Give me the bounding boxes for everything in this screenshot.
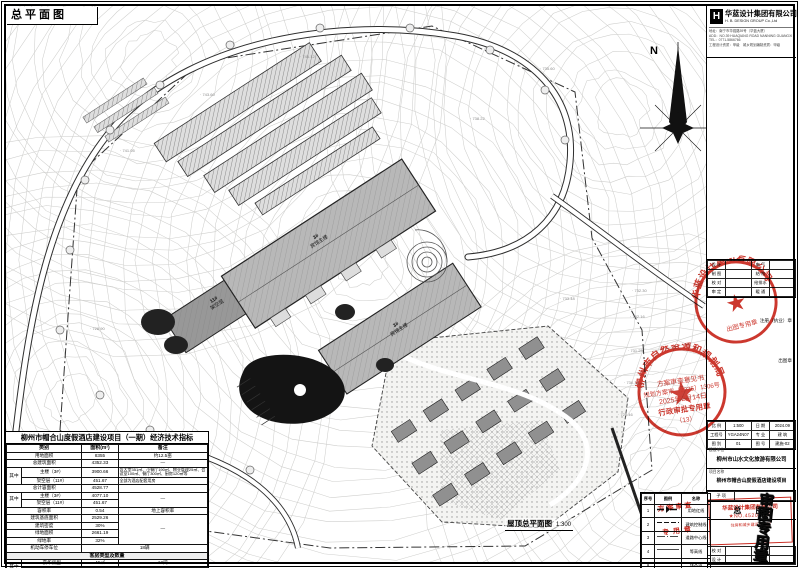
legend-name: 排水沟	[682, 558, 711, 568]
company-logo: H	[710, 9, 723, 24]
economic-indicator-table: 柳州市帽合山度假酒店建设项目（一期）经济技术指标 类别面积(m²)备注用地面积8…	[5, 431, 209, 568]
econ-cell: 全部为酒店配套用房	[118, 477, 207, 485]
econ-cell: 4077.10	[82, 492, 118, 500]
econ-cell: 32%	[82, 537, 118, 545]
econ-cell: 451.67	[82, 500, 118, 508]
bureau-stamp-line5: （13）	[675, 414, 696, 425]
caption-text: 屋顶总平面图	[507, 519, 552, 528]
legend-no: 5	[642, 558, 655, 568]
company-name-en: H. B. DESIGN GROUP Co.,Ltd	[725, 19, 777, 23]
econ-cell: 架空层（11#）	[22, 500, 82, 508]
legend-symbol	[655, 558, 682, 568]
econ-cell: 建筑密度	[7, 522, 82, 530]
release-seal-line1: 华蓝设计集团有限公司	[709, 502, 790, 513]
tb-grid-cell: 2024.09	[769, 422, 795, 431]
econ-cell: 2529.26	[82, 515, 118, 523]
econ-cell: 8355	[82, 452, 118, 460]
spot-elevation: · 738.22	[470, 116, 485, 121]
econ-cell: 2661.19	[82, 530, 118, 538]
econ-row: 容积率0.54地上容积率	[7, 507, 208, 515]
econ-cell: 客房类型及数量	[7, 552, 208, 560]
north-label: N	[650, 45, 658, 57]
project-value: 柳州市帽合山度假酒店建设项目	[707, 477, 796, 484]
tb-grid-cell	[769, 556, 795, 565]
tb-grid-cell	[769, 547, 795, 556]
econ-row: 其中主楼（3#）3900.66含大堂351㎡、小餐厅190㎡、物业管理25㎡、会…	[7, 467, 208, 477]
spot-elevation: · 729.46	[618, 412, 633, 417]
company-header: H 华蓝设计集团有限公司 H. B. DESIGN GROUP Co.,Ltd …	[707, 6, 796, 58]
econ-row: 总计容面积4528.77	[7, 485, 208, 493]
client-value: 柳州市山水文化旅游有限公司	[707, 455, 796, 463]
legend-row: 4等高线	[642, 545, 711, 559]
company-info-line: 工程设计资质：甲级 城乡规划编制资质：甲级	[709, 43, 794, 48]
spot-elevation: · 735.60	[540, 66, 555, 71]
econ-cell: 容积率	[7, 507, 82, 515]
spot-elevation: · 732.16	[630, 314, 645, 319]
north-arrow: N	[640, 42, 706, 151]
econ-cell	[118, 485, 207, 493]
econ-cell: 主楼（3#）	[22, 467, 82, 477]
company-stamp-star: ★	[723, 288, 750, 318]
legend-symbol	[655, 545, 682, 559]
econ-cell: 备注	[118, 445, 207, 453]
econ-cell: 用地面积	[7, 452, 82, 460]
econ-cell: 其中	[7, 467, 22, 485]
econ-cell: 豪华房型	[22, 560, 82, 568]
econ-cell: —	[118, 515, 207, 545]
econ-row: 建筑基底面积2529.26—	[7, 515, 208, 523]
econ-cell: 主楼（3#）	[22, 492, 82, 500]
econ-cell: 其中	[7, 492, 22, 507]
econ-cell: 46㎡	[82, 560, 118, 568]
company-info-lines: 地址：南宁市华强路39号（华蓝大厦）ADD：NO.39 HUAQIANG ROA…	[709, 27, 794, 47]
client-field: 建设单位 柳州市山水文化旅游有限公司	[707, 447, 796, 469]
econ-row: 架空层（11#）451.67全部为酒店配套用房	[7, 477, 208, 485]
spot-elevation: · 733.48	[560, 296, 575, 301]
econ-table-title: 柳州市帽合山度假酒店建设项目（一期）经济技术指标	[6, 432, 208, 444]
econ-cell: 架空层（11#）	[22, 477, 82, 485]
title-block-blank-area	[707, 58, 796, 260]
tb-grid-cell	[725, 547, 751, 556]
econ-cell: 0.54	[82, 507, 118, 515]
econ-cell: 18辆	[82, 545, 208, 553]
spot-elevation: · 732.30	[632, 288, 647, 293]
planning-bureau-stamp: 柳州市自然资源和规划局 ★ 方案审查意见书 规划方案审〔2025〕1306号 2…	[628, 338, 736, 446]
spot-elevation: · 745.12	[300, 54, 315, 59]
spot-elevation: · 728.90	[90, 326, 105, 331]
econ-cell: 30%	[82, 522, 118, 530]
spot-elevation: · 743.60	[200, 92, 215, 97]
tb-grid-cell: 建 筑	[769, 431, 795, 440]
econ-row: 其中豪华房型46㎡12间	[7, 560, 208, 568]
sheet-title-text: 总平面图	[11, 9, 67, 21]
econ-row: 机动车停车位18辆	[7, 545, 208, 553]
econ-cell: 12间	[118, 560, 207, 568]
sheet-title: 总平面图	[7, 7, 98, 25]
econ-cell: 4528.77	[82, 485, 118, 493]
econ-cell: 建筑基底面积	[7, 515, 82, 523]
econ-cell: 绿地率	[7, 537, 82, 545]
econ-row: 类别面积(m²)备注	[7, 445, 208, 453]
tb-grid-cell	[769, 261, 795, 270]
econ-row: 总建筑面积4352.33—	[7, 460, 208, 468]
villa-zone	[372, 326, 628, 528]
econ-cell: 451.67	[82, 477, 118, 485]
econ-row: 其中主楼（3#）4077.10—	[7, 492, 208, 500]
econ-cell: 其中	[7, 560, 22, 568]
econ-cell: 含大堂351㎡、小餐厅190㎡、物业管理25㎡、会议室100㎡、餐厅300㎡、厨…	[118, 467, 207, 477]
econ-cell: 面积(m²)	[82, 445, 118, 453]
econ-cell: —	[118, 460, 207, 468]
econ-cell: 3900.66	[82, 467, 118, 477]
drawing-sheet: · 732.30· 732.16· 731.25· 730.18· 729.46…	[0, 0, 799, 568]
econ-cell: 机动车停车位	[7, 545, 82, 553]
tb-grid-cell: 日 期	[751, 422, 769, 431]
econ-row: 用地面积8355约12.5亩	[7, 452, 208, 460]
release-seal-line3: 住房和城乡建设厅监制	[710, 521, 791, 530]
legend-no: 4	[642, 545, 655, 559]
econ-cell: 总计容面积	[7, 485, 82, 493]
company-stamp-bottom-text: 出图专用章	[725, 317, 759, 334]
legend-row: 5排水沟	[642, 558, 711, 568]
econ-cell: 4352.33	[82, 460, 118, 468]
project-label: 项目名称	[709, 470, 724, 475]
econ-cell: —	[118, 492, 207, 507]
econ-cell: 类别	[7, 445, 82, 453]
drawing-caption: 屋顶总平面图1:300	[505, 518, 573, 531]
legend-name: 等高线	[682, 545, 711, 559]
legend-header-cell: 序号	[642, 494, 655, 505]
econ-table: 类别面积(m²)备注用地面积8355约12.5亩总建筑面积4352.33—其中主…	[6, 444, 208, 568]
tb-grid-cell: 专 业	[751, 431, 769, 440]
company-name: 华蓝设计集团有限公司	[725, 9, 797, 19]
econ-row: 客房类型及数量	[7, 552, 208, 560]
econ-cell: 地上容积率	[118, 507, 207, 515]
plot-seal-label: 出图章	[778, 358, 792, 364]
econ-cell: 绿地面积	[7, 530, 82, 538]
econ-cell: 约12.5亩	[118, 452, 207, 460]
econ-cell: 总建筑面积	[7, 460, 82, 468]
pond-island	[294, 384, 306, 396]
release-seal-line2: ★NO.45200263	[710, 512, 791, 521]
client-label: 建设单位	[709, 448, 724, 453]
spot-elevation: · 741.05	[120, 148, 135, 153]
project-field: 项目名称 柳州市帽合山度假酒店建设项目	[707, 469, 796, 491]
caption-scale: 1:300	[556, 522, 571, 528]
